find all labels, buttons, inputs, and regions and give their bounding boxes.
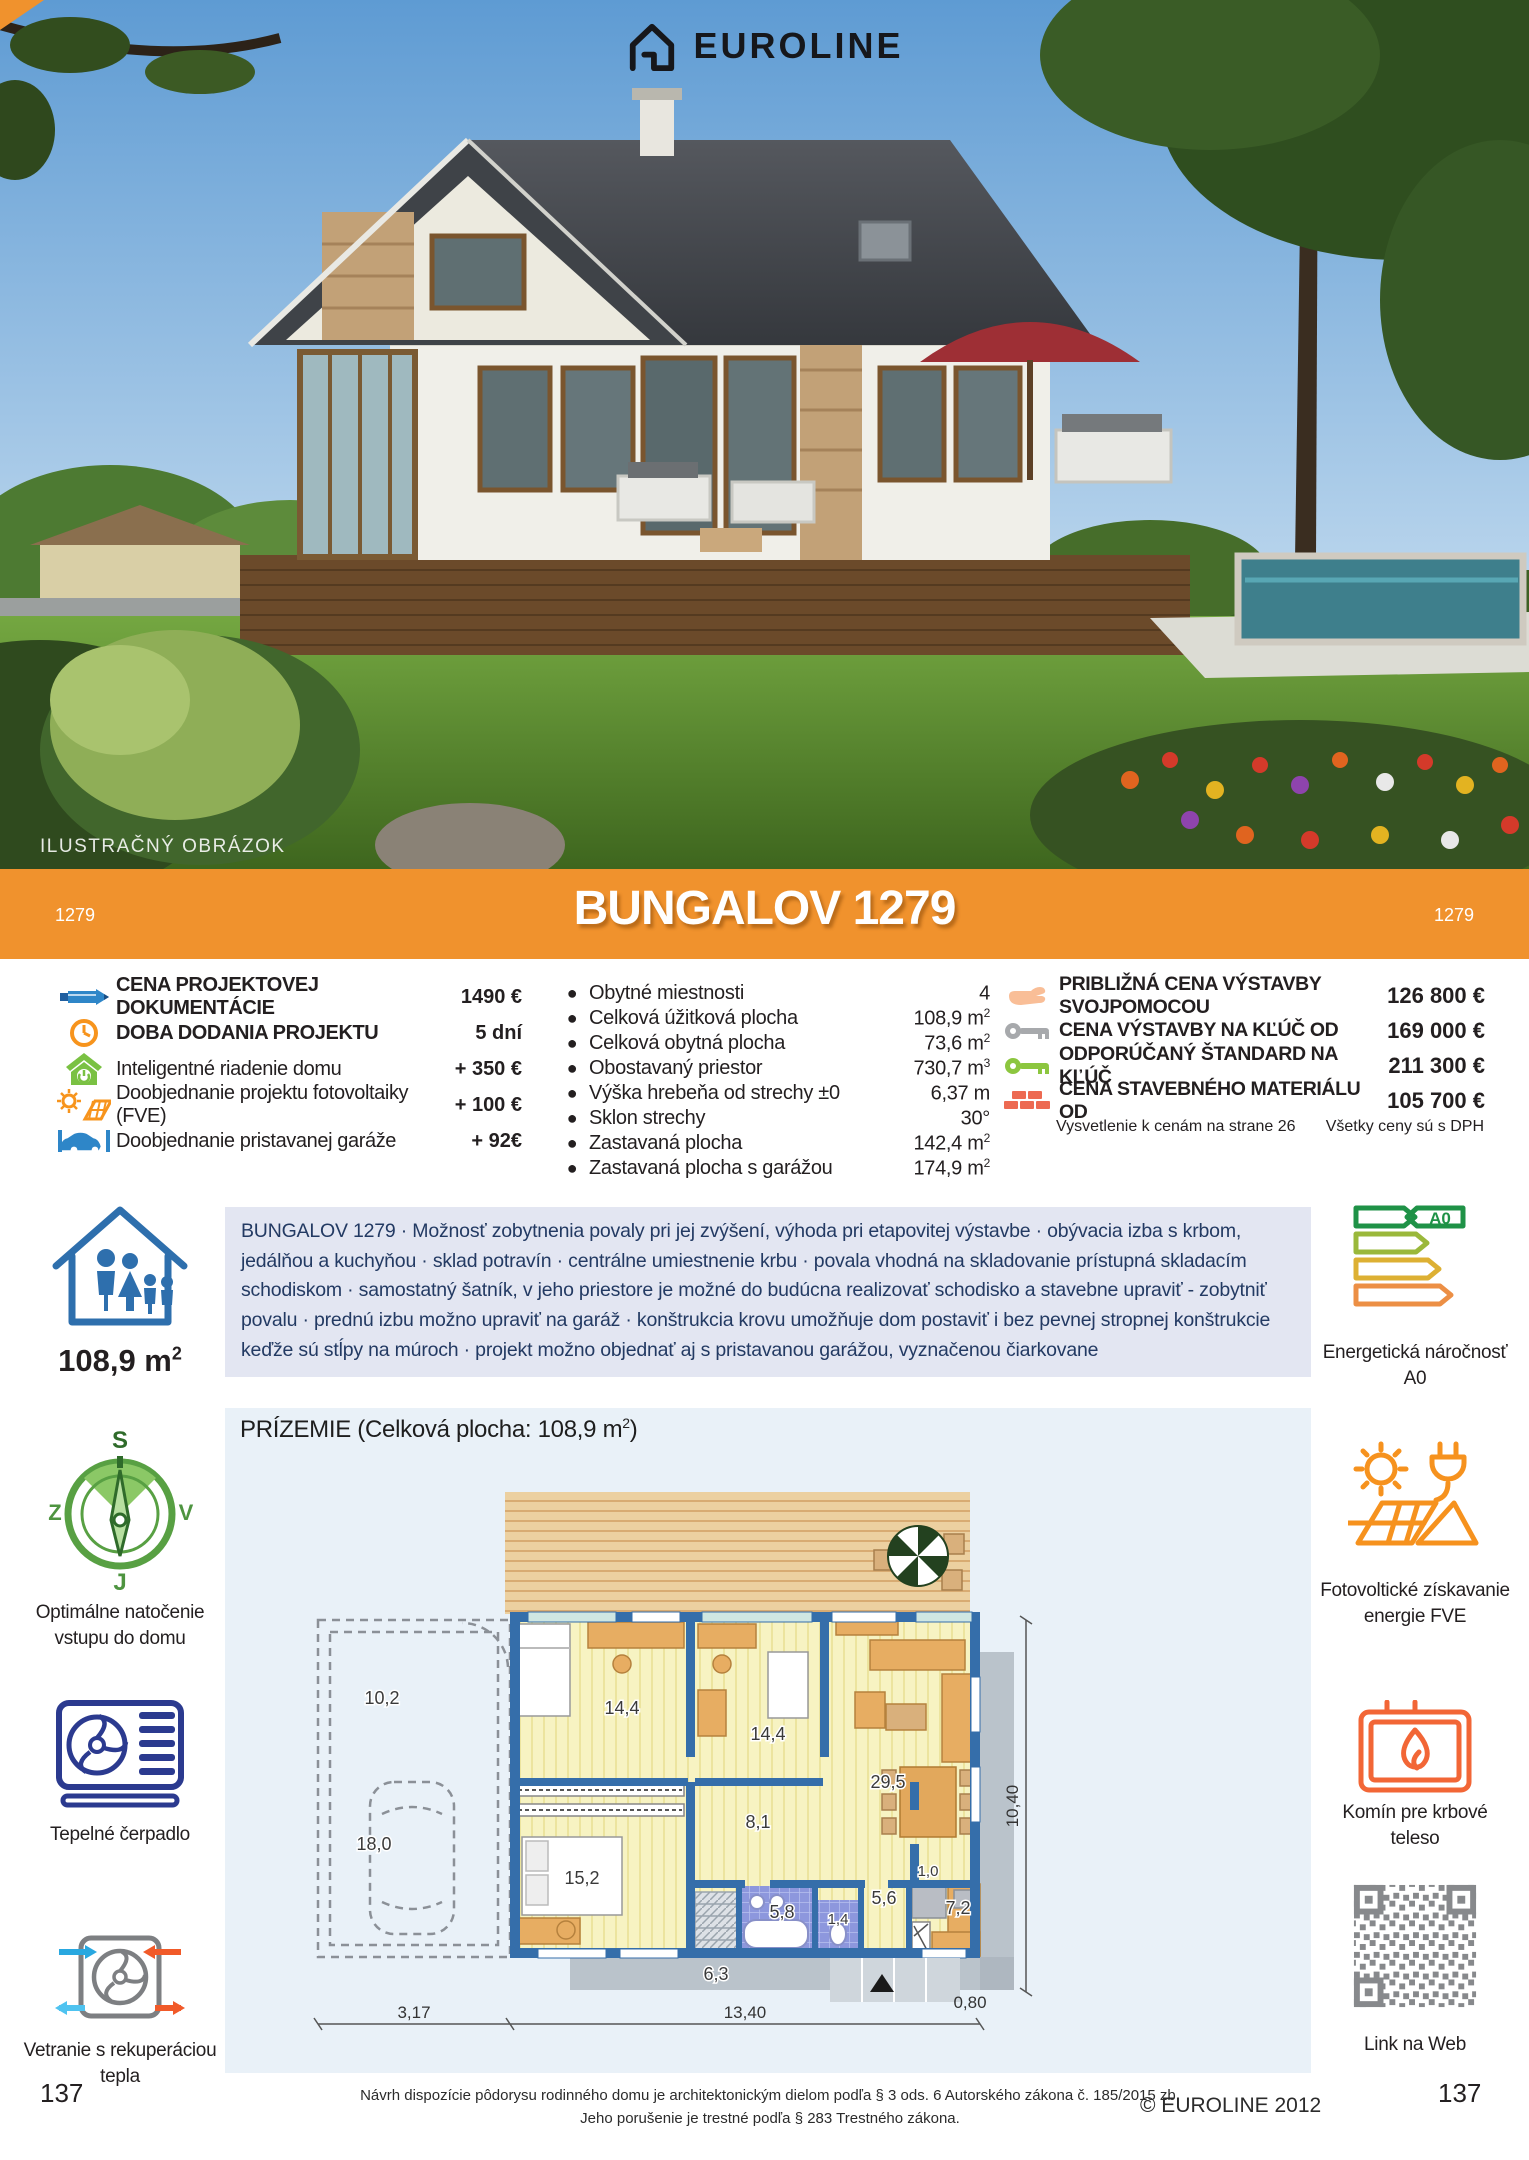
solar-project-icon <box>52 1089 116 1121</box>
house-family-icon <box>45 1202 195 1330</box>
spec-row: ●Zastavaná plocha s garážou174,9 m2 <box>555 1156 990 1181</box>
room-area-label: 5,8 <box>769 1902 794 1922</box>
qr-code <box>1350 1880 1480 2012</box>
pencil-icon <box>52 986 116 1008</box>
room-area-label: 14,4 <box>750 1724 785 1744</box>
legal-line-1: Návrh dispozície pôdorysu rodinného domu… <box>320 2085 1220 2108</box>
key-grey-icon <box>995 1020 1059 1042</box>
chimney-caption: Komín pre krbové teleso <box>1320 1800 1510 1851</box>
ventilation-icon <box>52 1912 187 2042</box>
hand-icon <box>995 982 1059 1010</box>
copyright: © EUROLINE 2012 <box>1140 2094 1370 2118</box>
legal-notice: Návrh dispozície pôdorysu rodinného domu… <box>320 2085 1220 2130</box>
room-area-label: 6,3 <box>703 1964 728 1984</box>
brand-logo: EUROLINE <box>0 20 1529 72</box>
house-description: BUNGALOV 1279 · Možnosť zobytnenia poval… <box>225 1207 1311 1377</box>
title-banner: 1279 BUNGALOV 1279 1279 <box>0 869 1529 959</box>
pricing-row: Doobjednanie pristavanej garáže + 92€ <box>52 1124 522 1158</box>
page-number-right: 137 <box>1438 2078 1481 2109</box>
energy-caption: Energetická náročnosť A0 <box>1320 1340 1510 1391</box>
spec-row: ●Výška hrebeňa od strechy ±06,37 m <box>555 1081 990 1106</box>
spec-row: ●Celková úžitková plocha108,9 m2 <box>555 1006 990 1031</box>
dim-label: 3,17 <box>397 2003 430 2022</box>
heat-pump-caption: Tepelné čerpadlo <box>30 1822 210 1848</box>
pricing-row: DOBA DODANIA PROJEKTU 5 dní <box>52 1016 522 1050</box>
heat-pump-icon <box>48 1698 193 1813</box>
compass-south: J <box>113 1569 126 1593</box>
key-green-icon <box>995 1055 1059 1077</box>
dim-label: 13,40 <box>724 2003 767 2022</box>
room-area-label: 5,6 <box>871 1888 896 1908</box>
spec-row: ●Celková obytná plocha73,6 m2 <box>555 1031 990 1056</box>
legal-line-2: Jeho porušenie je trestné podľa § 283 Tr… <box>320 2108 1220 2131</box>
brand-name: EUROLINE <box>693 25 903 67</box>
garage-outline <box>318 1620 510 1957</box>
pricing-row: CENA STAVEBNÉHO MATERIÁLU OD 105 700 € <box>995 1083 1485 1118</box>
house-photo <box>0 0 1529 869</box>
pricing-row: Doobjednanie projektu fotovoltaiky (FVE)… <box>52 1088 522 1122</box>
house-title: BUNGALOV 1279 <box>0 881 1529 936</box>
room-area-label: 1,0 <box>918 1863 939 1880</box>
clock-icon <box>52 1018 116 1048</box>
room-area-label: 14,4 <box>604 1698 639 1718</box>
room-area-label: 8,1 <box>745 1812 770 1832</box>
photovoltaic-icon <box>1340 1438 1490 1563</box>
spec-row: ●Sklon strechy30° <box>555 1106 990 1131</box>
room-area-label: 1,4 <box>828 1911 849 1928</box>
price-notes: Vysvetlenie k cenám na strane 26 Všetky … <box>1056 1118 1484 1136</box>
dim-label: 10,40 <box>1003 1785 1022 1828</box>
page-number-left: 137 <box>40 2078 83 2109</box>
spec-row: ●Obostavaný priestor730,7 m3 <box>555 1056 990 1081</box>
pool <box>1238 556 1523 642</box>
photo-watermark: ILUSTRAČNÝ OBRÁZOK <box>40 836 286 858</box>
qr-caption: Link na Web <box>1330 2032 1500 2058</box>
room-area-label: 18,0 <box>356 1834 391 1854</box>
euroline-house-icon <box>625 20 679 72</box>
spec-row: ●Obytné miestnosti4 <box>555 981 990 1006</box>
room-area-label: 29,5 <box>870 1772 905 1792</box>
compass-icon: S Z V J <box>45 1428 195 1593</box>
compass-north: S <box>112 1428 128 1454</box>
compass-west: Z <box>48 1500 61 1525</box>
note-explanation: Vysvetlenie k cenám na strane 26 <box>1056 1118 1296 1136</box>
floorplan-title: PRÍZEMIE (Celková plocha: 108,9 m2) <box>240 1415 1240 1444</box>
room-area-label: 15,2 <box>564 1868 599 1888</box>
room-area-label: 7,2 <box>945 1898 970 1918</box>
house-photo-illustration <box>0 0 1529 869</box>
energy-rating-icon: A0 <box>1335 1205 1495 1310</box>
pricing-row: Inteligentné riadenie domu + 350 € <box>52 1052 522 1086</box>
compass-east: V <box>179 1500 194 1525</box>
photovoltaic-caption: Fotovoltické získavanie energie FVE <box>1315 1578 1515 1629</box>
corner-accent <box>0 0 44 30</box>
pricing-row: CENA PROJEKTOVEJ DOKUMENTÁCIE 1490 € <box>52 980 522 1014</box>
room-area-label: 10,2 <box>364 1688 399 1708</box>
chimney-icon <box>1345 1700 1485 1795</box>
smart-home-icon <box>52 1053 116 1085</box>
stairs-area <box>695 1892 737 1954</box>
usable-area-label: 108,9 m2 <box>30 1343 210 1379</box>
compass-caption: Optimálne natočenie vstupu do domu <box>20 1600 220 1651</box>
floor-plan: 10,2 18,0 14,4 14,4 29,5 8,1 15,2 6,3 5,… <box>270 1452 1070 2057</box>
bricks-icon <box>995 1089 1059 1113</box>
pricing-row: PRIBLIŽNÁ CENA VÝSTAVBY SVOJPOMOCOU 126 … <box>995 978 1485 1013</box>
dim-label: 0,80 <box>953 1993 986 2012</box>
garage-icon <box>52 1128 116 1154</box>
spec-row: ●Zastavaná plocha142,4 m2 <box>555 1131 990 1156</box>
energy-badge: A0 <box>1429 1209 1451 1228</box>
note-vat: Všetky ceny sú s DPH <box>1326 1118 1484 1136</box>
page-code-right: 1279 <box>1434 905 1474 926</box>
